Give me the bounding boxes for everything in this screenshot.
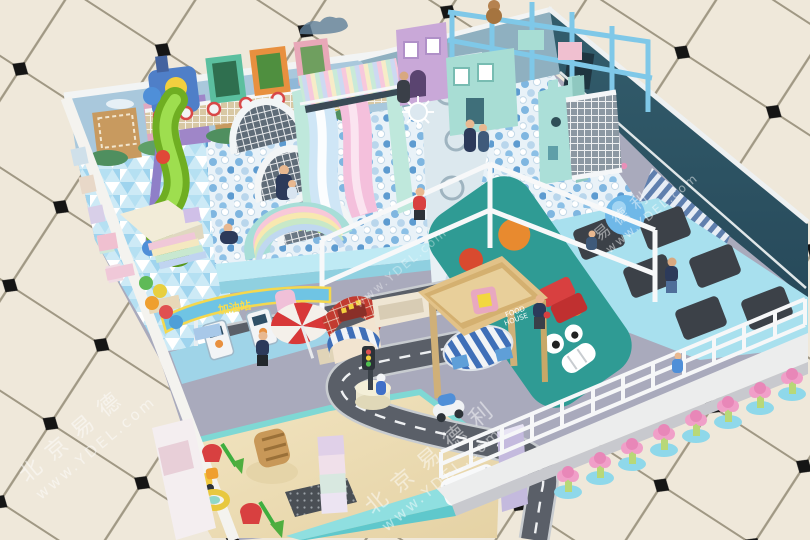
train-frame-2 (249, 46, 290, 96)
playground-render: 加油站 (0, 0, 810, 540)
striped-column (317, 435, 347, 514)
toy-figure (376, 374, 386, 396)
white-net-panel (566, 92, 622, 178)
scene-canvas: 加油站 (0, 0, 810, 540)
mural-cloud (106, 99, 134, 109)
mint-playhouse (446, 48, 518, 136)
train-frame-1 (205, 54, 246, 104)
food-house-sign (470, 286, 499, 315)
